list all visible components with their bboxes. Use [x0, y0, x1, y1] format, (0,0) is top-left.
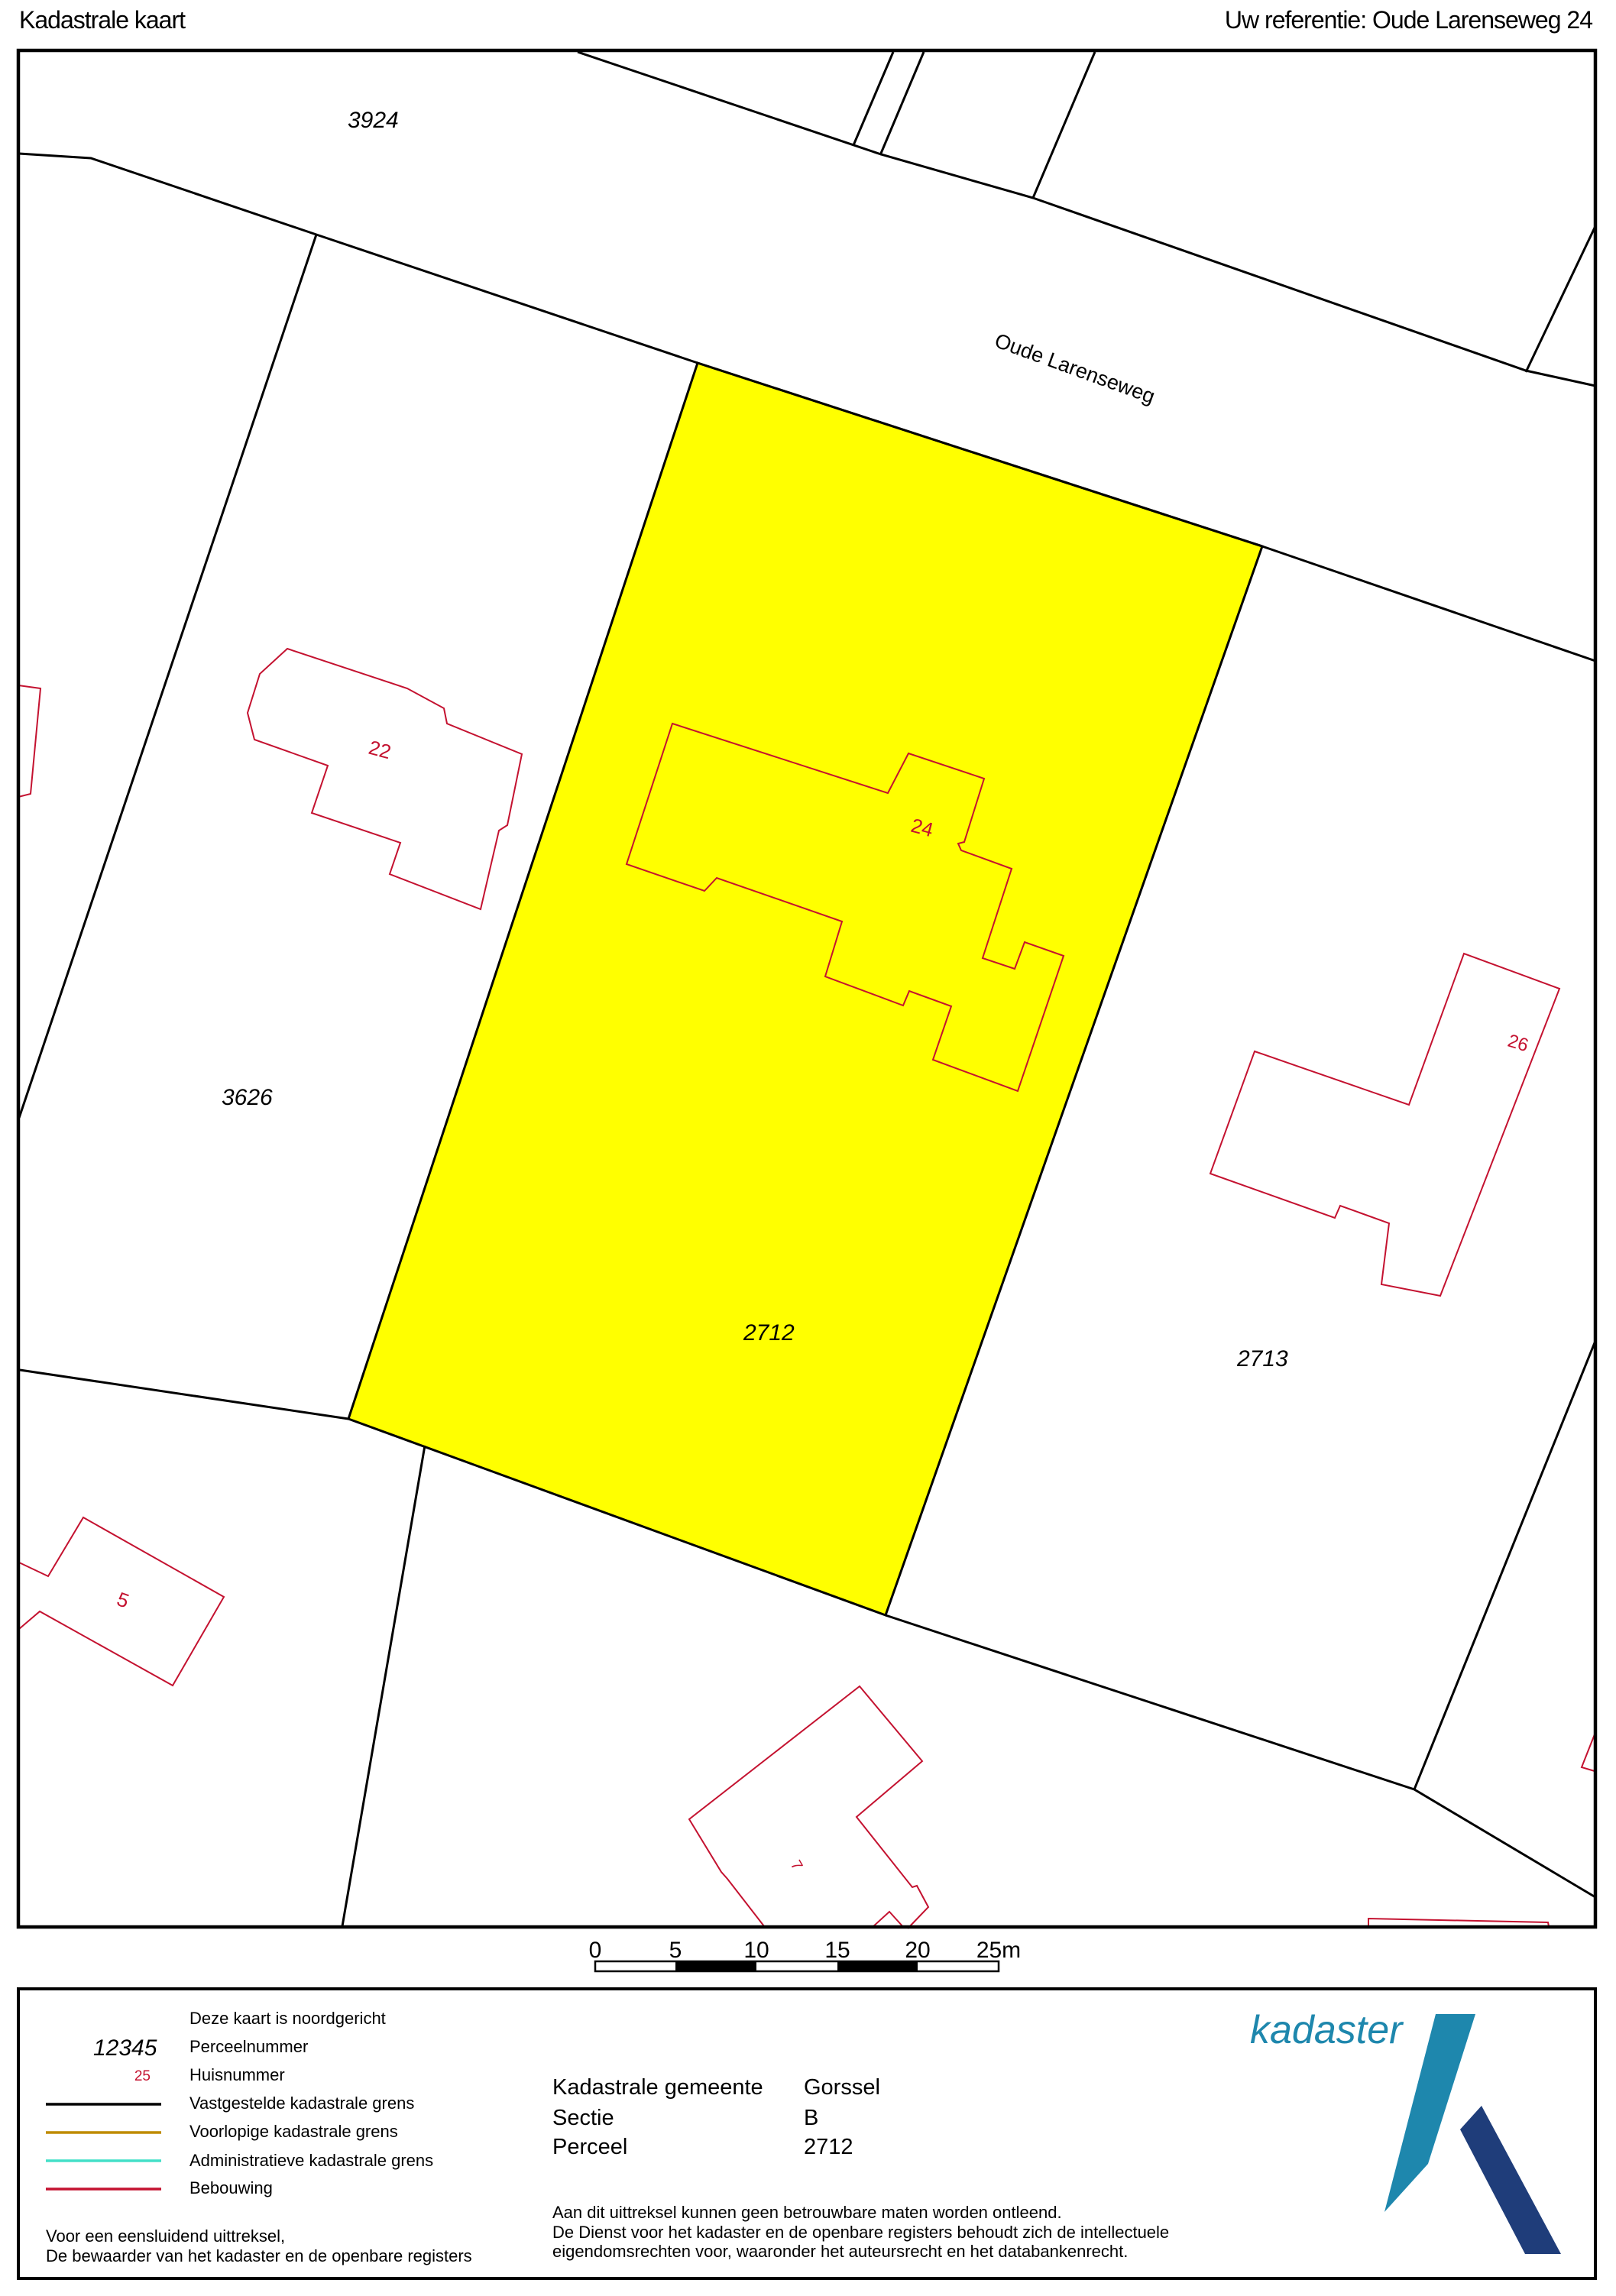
svg-text:5: 5: [669, 1938, 682, 1963]
svg-text:Aan dit uittreksel kunnen geen: Aan dit uittreksel kunnen geen betrouwba…: [552, 2203, 1062, 2222]
svg-text:15: 15: [824, 1938, 850, 1963]
svg-text:Uw referentie: Oude Larenseweg: Uw referentie: Oude Larenseweg 24: [1225, 6, 1592, 34]
svg-text:Deze kaart is noordgericht: Deze kaart is noordgericht: [189, 2009, 386, 2028]
svg-text:B: B: [804, 2106, 818, 2130]
svg-text:Kadastrale gemeente: Kadastrale gemeente: [552, 2075, 763, 2100]
svg-text:Voorlopige kadastrale grens: Voorlopige kadastrale grens: [189, 2122, 398, 2141]
svg-text:De bewaarder van het kadaster: De bewaarder van het kadaster en de open…: [46, 2246, 472, 2265]
svg-text:3626: 3626: [222, 1085, 273, 1110]
svg-text:0: 0: [589, 1938, 602, 1963]
svg-text:De Dienst voor het kadaster en: De Dienst voor het kadaster en de openba…: [552, 2223, 1169, 2242]
svg-text:Voor een eensluidend uittrekse: Voor een eensluidend uittreksel,: [46, 2226, 285, 2246]
svg-text:Vastgestelde kadastrale grens: Vastgestelde kadastrale grens: [189, 2094, 414, 2113]
svg-text:Huisnummer: Huisnummer: [189, 2065, 285, 2084]
svg-text:25: 25: [134, 2068, 151, 2084]
svg-text:eigendomsrechten voor, waarond: eigendomsrechten voor, waaronder het aut…: [552, 2242, 1128, 2261]
svg-text:Perceel: Perceel: [552, 2135, 627, 2159]
svg-text:Gorssel: Gorssel: [804, 2075, 880, 2100]
svg-text:20: 20: [905, 1938, 930, 1963]
svg-text:Kadastrale kaart: Kadastrale kaart: [19, 6, 186, 34]
svg-text:10: 10: [743, 1938, 769, 1963]
svg-text:2713: 2713: [1236, 1346, 1288, 1371]
svg-text:Perceelnummer: Perceelnummer: [189, 2037, 308, 2056]
svg-text:25m: 25m: [976, 1938, 1021, 1963]
svg-text:2712: 2712: [743, 1320, 795, 1346]
svg-text:kadaster: kadaster: [1250, 2008, 1404, 2052]
svg-text:Administratieve kadastrale gre: Administratieve kadastrale grens: [189, 2151, 433, 2170]
svg-text:Bebouwing: Bebouwing: [189, 2178, 273, 2197]
svg-text:Sectie: Sectie: [552, 2106, 614, 2130]
svg-text:2712: 2712: [804, 2135, 853, 2159]
svg-text:3924: 3924: [348, 108, 399, 133]
svg-text:12345: 12345: [93, 2035, 157, 2061]
